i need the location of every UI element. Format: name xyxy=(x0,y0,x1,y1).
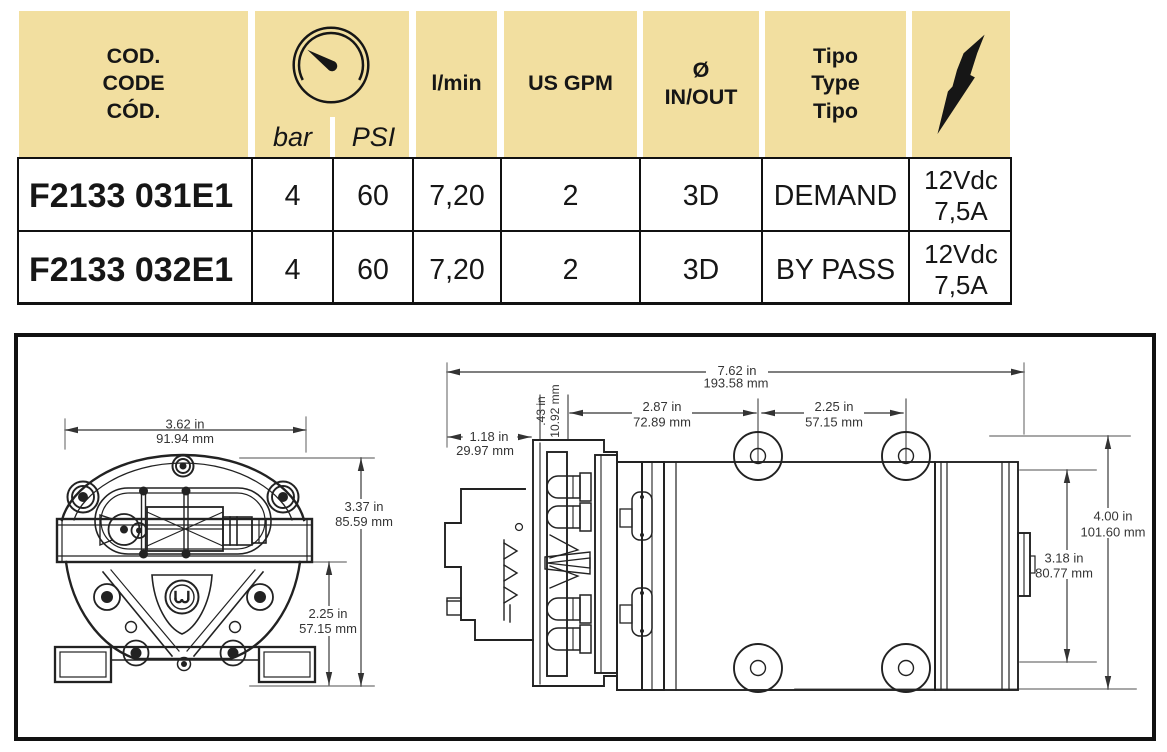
svg-text:57.15 mm: 57.15 mm xyxy=(805,415,863,430)
svg-text:91.94 mm: 91.94 mm xyxy=(156,431,214,446)
svg-text:3.62 in: 3.62 in xyxy=(165,417,204,432)
svg-text:101.60 mm: 101.60 mm xyxy=(1080,525,1145,540)
svg-text:3.18 in: 3.18 in xyxy=(1044,551,1083,566)
svg-text:.43 in: .43 in xyxy=(534,396,548,425)
svg-text:2.25 in: 2.25 in xyxy=(308,606,347,621)
svg-text:29.97 mm: 29.97 mm xyxy=(456,443,514,458)
svg-text:10.92 mm: 10.92 mm xyxy=(548,384,562,437)
svg-text:72.89 mm: 72.89 mm xyxy=(633,415,691,430)
svg-text:2.87 in: 2.87 in xyxy=(642,399,681,414)
svg-text:1.18 in: 1.18 in xyxy=(469,429,508,444)
svg-text:2.25 in: 2.25 in xyxy=(814,399,853,414)
svg-text:80.77 mm: 80.77 mm xyxy=(1035,566,1093,581)
svg-text:57.15 mm: 57.15 mm xyxy=(299,621,357,636)
svg-text:193.58 mm: 193.58 mm xyxy=(703,376,768,391)
svg-text:4.00 in: 4.00 in xyxy=(1093,509,1132,524)
svg-text:85.59 mm: 85.59 mm xyxy=(335,514,393,529)
svg-text:3.37 in: 3.37 in xyxy=(344,499,383,514)
